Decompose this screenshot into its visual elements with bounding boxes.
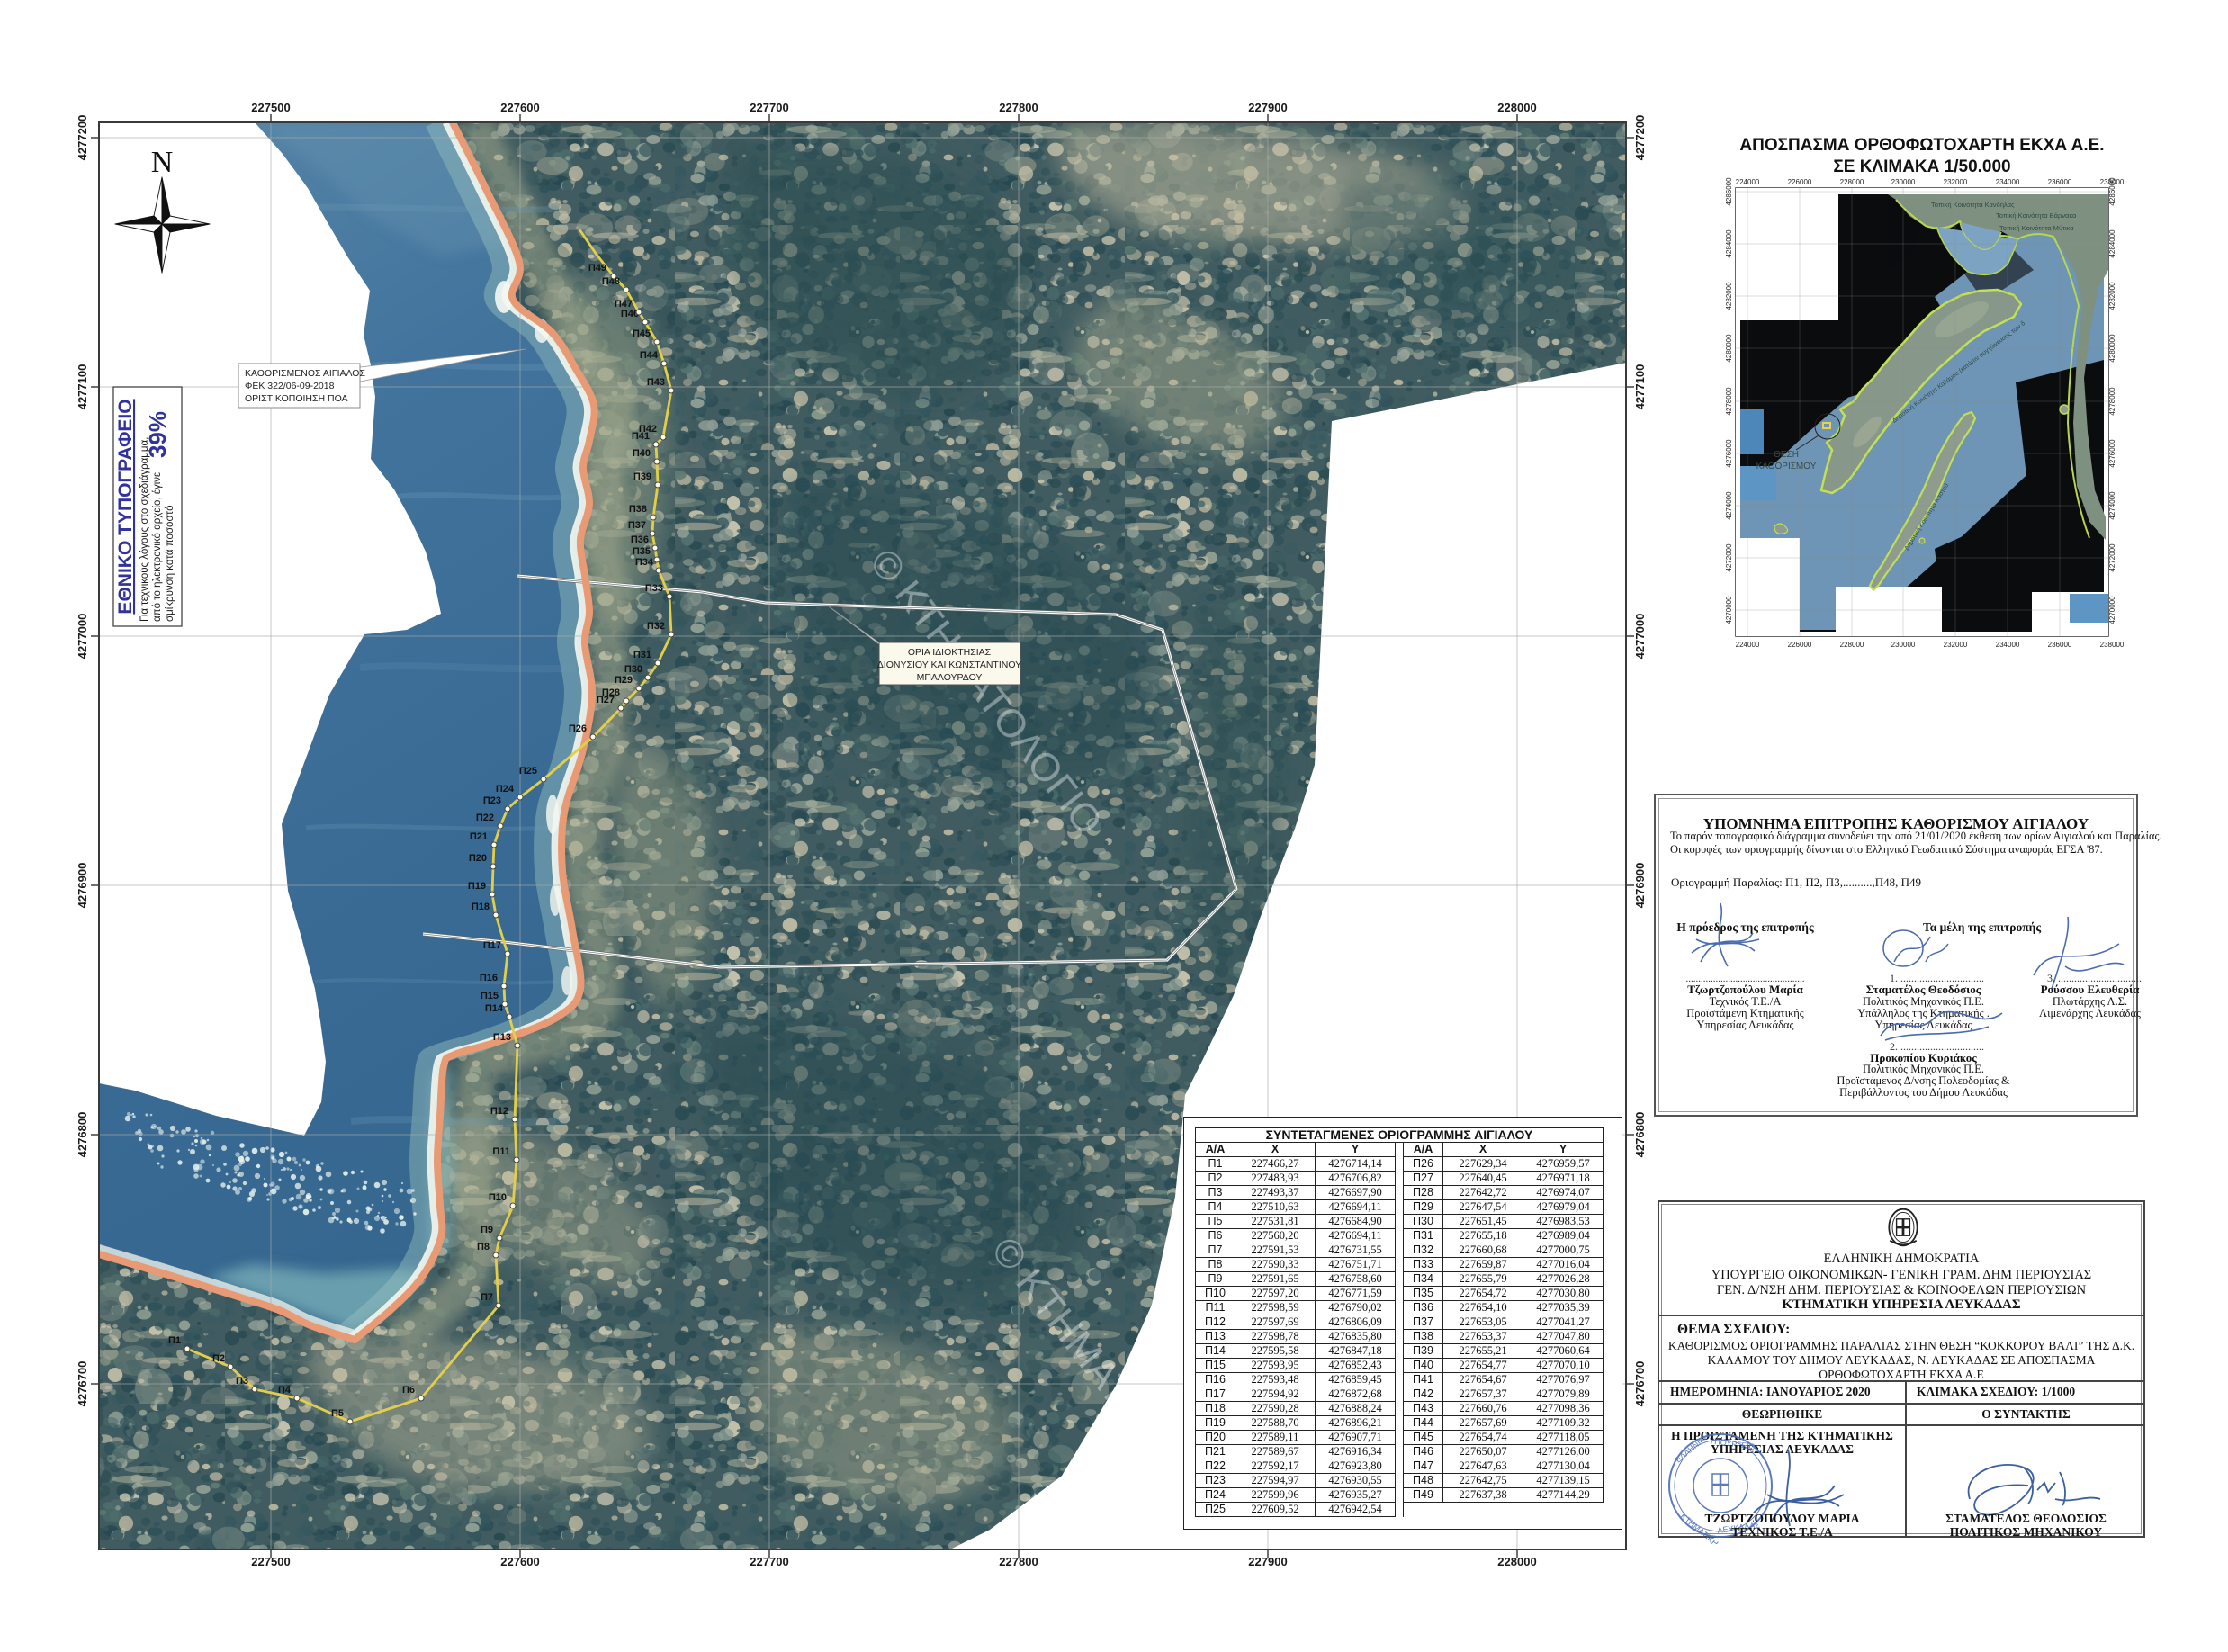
svg-text:230000: 230000 xyxy=(1891,641,1916,649)
svg-text:Τοπική Κοινότητα Βάρνακα: Τοπική Κοινότητα Βάρνακα xyxy=(1996,211,2077,220)
svg-text:227500: 227500 xyxy=(251,1555,290,1568)
svg-text:234000: 234000 xyxy=(1996,178,2020,186)
svg-text:Π38: Π38 xyxy=(629,504,647,515)
svg-text:Π9: Π9 xyxy=(481,1225,493,1235)
svg-text:Π12: Π12 xyxy=(490,1106,508,1117)
svg-text:4277000: 4277000 xyxy=(1633,614,1647,660)
svg-text:4286000: 4286000 xyxy=(1725,177,1733,206)
svg-text:39%: 39% xyxy=(144,411,171,458)
svg-text:Π45: Π45 xyxy=(633,328,651,339)
svg-text:227800: 227800 xyxy=(999,1555,1038,1568)
svg-text:Π25: Π25 xyxy=(519,766,537,777)
svg-text:4280000: 4280000 xyxy=(2108,334,2116,363)
svg-text:Π6: Π6 xyxy=(402,1385,415,1396)
svg-text:4286000: 4286000 xyxy=(2108,177,2116,206)
svg-text:4274000: 4274000 xyxy=(1725,491,1733,520)
svg-text:ΣΕ ΚΛΙΜΑΚΑ 1/50.000: ΣΕ ΚΛΙΜΑΚΑ 1/50.000 xyxy=(1833,157,2010,176)
svg-text:Π36: Π36 xyxy=(631,534,649,545)
svg-text:Π7: Π7 xyxy=(481,1292,493,1303)
svg-text:4277100: 4277100 xyxy=(76,364,89,410)
svg-text:224000: 224000 xyxy=(1736,178,1760,186)
svg-text:Π31: Π31 xyxy=(633,650,651,660)
svg-text:4284000: 4284000 xyxy=(2108,229,2116,258)
svg-text:Π34: Π34 xyxy=(635,557,654,568)
svg-text:Π37: Π37 xyxy=(628,520,646,531)
svg-text:Π33: Π33 xyxy=(645,583,663,594)
svg-text:Π43: Π43 xyxy=(647,377,665,388)
svg-text:227900: 227900 xyxy=(1248,101,1287,114)
svg-text:Π28: Π28 xyxy=(602,687,620,698)
svg-text:4277200: 4277200 xyxy=(1633,115,1647,161)
svg-text:227900: 227900 xyxy=(1248,1555,1287,1568)
svg-text:226000: 226000 xyxy=(1788,178,1812,186)
svg-text:Π26: Π26 xyxy=(569,723,587,734)
svg-text:228000: 228000 xyxy=(1840,641,1864,649)
svg-text:4280000: 4280000 xyxy=(1725,334,1733,363)
svg-text:ΦΕΚ 322/06-09-2018: ΦΕΚ 322/06-09-2018 xyxy=(245,381,335,391)
svg-text:4277200: 4277200 xyxy=(76,115,89,161)
svg-text:Π2: Π2 xyxy=(212,1353,225,1364)
svg-text:Π44: Π44 xyxy=(640,350,659,361)
svg-text:Π48: Π48 xyxy=(602,276,620,287)
svg-text:ΚΑΘΟΡΙΣΜΟΥ: ΚΑΘΟΡΙΣΜΟΥ xyxy=(1756,462,1817,471)
svg-text:234000: 234000 xyxy=(1996,641,2020,649)
svg-text:228000: 228000 xyxy=(1840,178,1864,186)
svg-text:Π30: Π30 xyxy=(624,664,642,675)
svg-text:Π24: Π24 xyxy=(496,784,515,795)
svg-text:4276000: 4276000 xyxy=(2108,439,2116,468)
svg-text:4278000: 4278000 xyxy=(1725,387,1733,416)
svg-text:4274000: 4274000 xyxy=(2108,491,2116,520)
svg-text:4276800: 4276800 xyxy=(76,1112,89,1158)
svg-text:Π14: Π14 xyxy=(485,1003,504,1014)
svg-text:232000: 232000 xyxy=(1944,641,1968,649)
svg-text:227600: 227600 xyxy=(500,1555,539,1568)
svg-text:ΘΕΣΗ: ΘΕΣΗ xyxy=(1774,450,1799,460)
svg-text:230000: 230000 xyxy=(1891,178,1916,186)
svg-text:4272000: 4272000 xyxy=(2108,543,2116,572)
svg-text:ΟΡΙΑ ΙΔΙΟΚΤΗΣΙΑΣ: ΟΡΙΑ ΙΔΙΟΚΤΗΣΙΑΣ xyxy=(908,647,992,658)
svg-text:4276700: 4276700 xyxy=(1633,1361,1647,1407)
svg-text:Π17: Π17 xyxy=(483,940,501,951)
svg-text:227600: 227600 xyxy=(500,101,539,114)
svg-text:Τοπική Κοινότητα Μύτικα: Τοπική Κοινότητα Μύτικα xyxy=(1999,224,2074,232)
svg-text:Π39: Π39 xyxy=(633,471,651,482)
svg-text:4282000: 4282000 xyxy=(1725,282,1733,310)
svg-text:227700: 227700 xyxy=(750,101,788,114)
svg-text:Π13: Π13 xyxy=(493,1032,511,1043)
svg-text:4276900: 4276900 xyxy=(76,863,89,909)
svg-text:ΔΙΟΝΥΣΙΟΥ ΚΑΙ ΚΩΝΣΤΑΝΤΙΝΟΥ: ΔΙΟΝΥΣΙΟΥ ΚΑΙ ΚΩΝΣΤΑΝΤΙΝΟΥ xyxy=(877,660,1021,670)
svg-text:Π15: Π15 xyxy=(481,991,499,1001)
svg-text:4277000: 4277000 xyxy=(76,614,89,660)
svg-text:Π46: Π46 xyxy=(621,309,639,319)
svg-text:σμίκρυνση κατά ποσοστό: σμίκρυνση κατά ποσοστό xyxy=(165,506,175,622)
svg-text:Για τεχνικούς λόγους στο σχεδι: Για τεχνικούς λόγους στο σχεδιάγραμμα, xyxy=(139,437,150,622)
svg-text:ΟΡΙΣΤΙΚΟΠΟΙΗΣΗ ΠΟΑ: ΟΡΙΣΤΙΚΟΠΟΙΗΣΗ ΠΟΑ xyxy=(245,393,348,404)
svg-text:227800: 227800 xyxy=(999,101,1038,114)
svg-text:236000: 236000 xyxy=(2048,178,2072,186)
svg-text:4276000: 4276000 xyxy=(1725,439,1733,468)
svg-text:238000: 238000 xyxy=(2100,641,2125,649)
svg-text:Π47: Π47 xyxy=(615,299,633,310)
svg-text:Π49: Π49 xyxy=(588,263,606,274)
svg-text:4284000: 4284000 xyxy=(1725,229,1733,258)
svg-text:Π11: Π11 xyxy=(492,1146,510,1157)
svg-text:4276900: 4276900 xyxy=(1633,863,1647,909)
svg-text:Π8: Π8 xyxy=(477,1242,490,1252)
svg-text:236000: 236000 xyxy=(2048,641,2072,649)
svg-text:Π1: Π1 xyxy=(168,1335,181,1346)
svg-text:Π29: Π29 xyxy=(615,675,633,686)
svg-text:4272000: 4272000 xyxy=(1725,543,1733,572)
svg-text:228000: 228000 xyxy=(1497,101,1536,114)
svg-text:4276700: 4276700 xyxy=(76,1361,89,1407)
svg-text:226000: 226000 xyxy=(1788,641,1812,649)
svg-text:Π21: Π21 xyxy=(470,831,488,842)
svg-text:232000: 232000 xyxy=(1944,178,1968,186)
svg-text:Π4: Π4 xyxy=(278,1385,292,1396)
svg-text:Π20: Π20 xyxy=(469,853,487,864)
svg-text:N: N xyxy=(151,146,174,179)
svg-text:Π10: Π10 xyxy=(489,1192,507,1203)
svg-text:ΜΠΑΛΟΥΡΔΟΥ: ΜΠΑΛΟΥΡΔΟΥ xyxy=(917,672,983,683)
svg-text:Π40: Π40 xyxy=(633,448,651,459)
svg-text:Π5: Π5 xyxy=(331,1408,344,1419)
svg-text:Π18: Π18 xyxy=(472,902,490,912)
svg-text:Π16: Π16 xyxy=(480,973,498,983)
svg-text:224000: 224000 xyxy=(1736,641,1760,649)
svg-text:Τοπική Κοινότητα Κανδήλας: Τοπική Κοινότητα Κανδήλας xyxy=(1931,201,2015,209)
svg-text:Π19: Π19 xyxy=(468,881,486,892)
svg-text:4282000: 4282000 xyxy=(2108,282,2116,310)
svg-text:ΕΛΛΗΝΙΚΗ: ΕΛΛΗΝΙΚΗ xyxy=(1674,1431,1711,1464)
svg-text:ΚΑΘΟΡΙΣΜΕΝΟΣ ΑΙΓΙΑΛΟΣ: ΚΑΘΟΡΙΣΜΕΝΟΣ ΑΙΓΙΑΛΟΣ xyxy=(245,368,365,379)
svg-text:4270000: 4270000 xyxy=(1725,596,1733,624)
svg-text:από το ηλεκτρονικό αρχείο, έγι: από το ηλεκτρονικό αρχείο, έγινε xyxy=(152,472,163,622)
svg-text:Π22: Π22 xyxy=(476,813,494,823)
svg-text:4270000: 4270000 xyxy=(2108,596,2116,624)
svg-text:ΑΠΟΣΠΑΣΜΑ ΟΡΘΟΦΩΤΟΧΑΡΤΗ ΕΚΧΑ Α: ΑΠΟΣΠΑΣΜΑ ΟΡΘΟΦΩΤΟΧΑΡΤΗ ΕΚΧΑ Α.Ε. xyxy=(1739,136,2104,155)
svg-text:4277100: 4277100 xyxy=(1633,364,1647,410)
svg-text:ΕΘΝΙΚΟ ΤΥΠΟΓΡΑΦΕΙΟ: ΕΘΝΙΚΟ ΤΥΠΟΓΡΑΦΕΙΟ xyxy=(115,399,136,614)
svg-text:Π32: Π32 xyxy=(647,621,665,632)
svg-text:4278000: 4278000 xyxy=(2108,387,2116,416)
svg-text:228000: 228000 xyxy=(1497,1555,1536,1568)
svg-text:227500: 227500 xyxy=(251,101,290,114)
svg-text:Π3: Π3 xyxy=(236,1376,248,1387)
svg-text:Π42: Π42 xyxy=(639,424,657,435)
svg-text:Π23: Π23 xyxy=(483,795,501,806)
svg-text:227700: 227700 xyxy=(750,1555,788,1568)
svg-text:Π35: Π35 xyxy=(633,546,651,557)
svg-text:4276800: 4276800 xyxy=(1633,1112,1647,1158)
